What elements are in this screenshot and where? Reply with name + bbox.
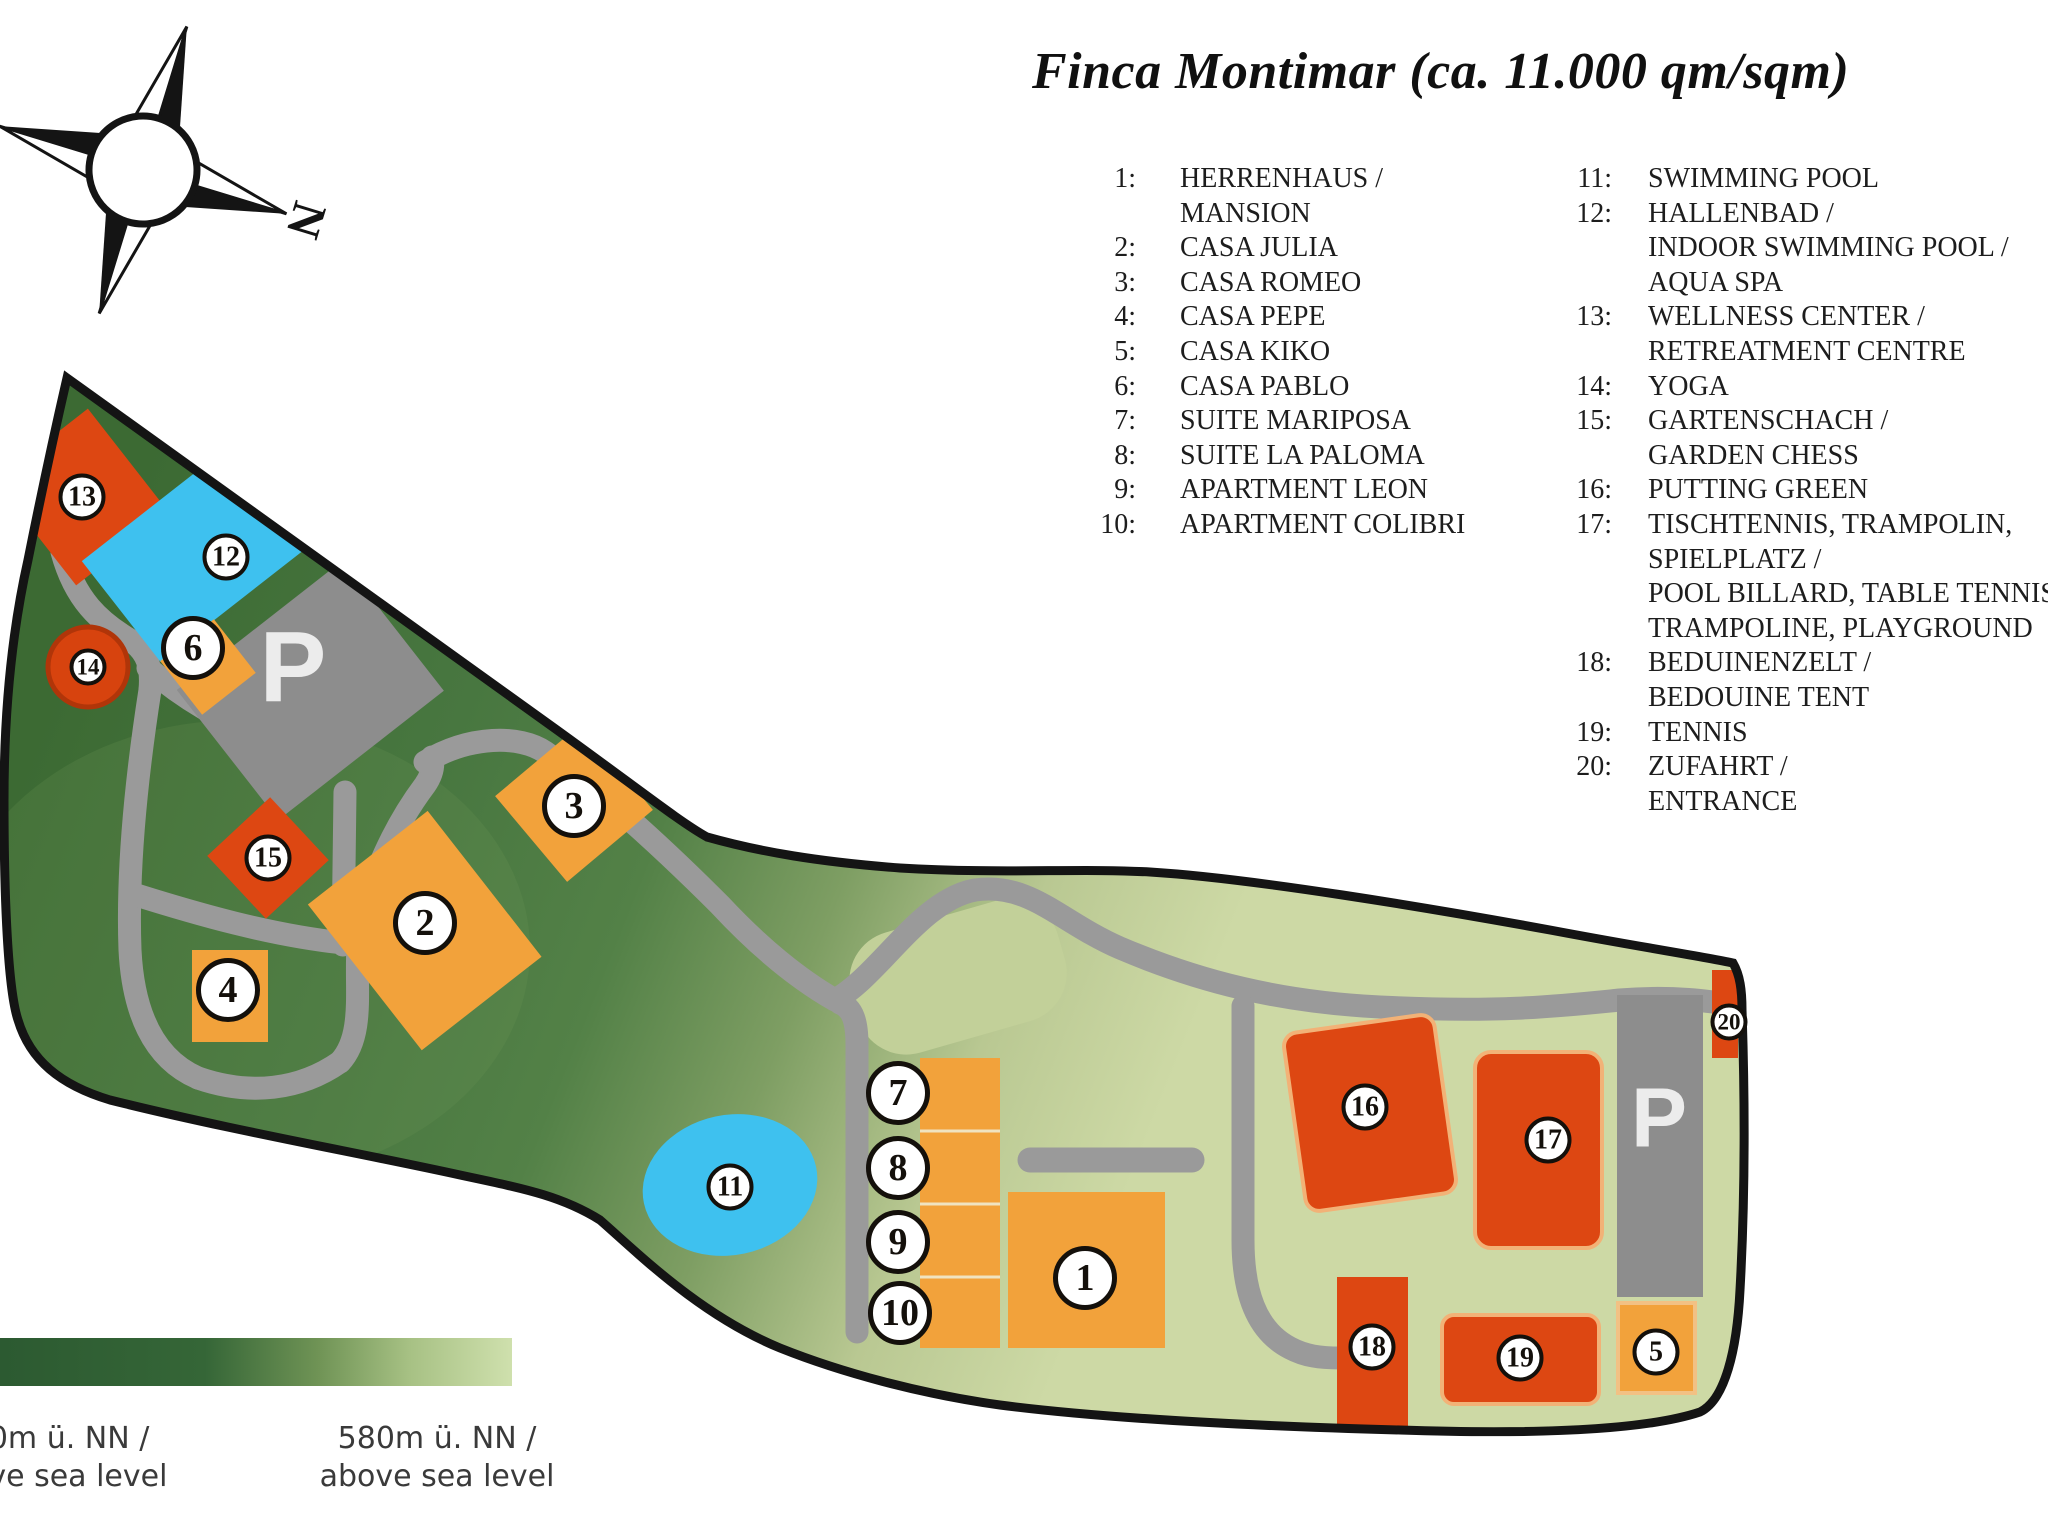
legend-item: MANSION	[1096, 197, 1465, 232]
map-marker-15: 15	[245, 835, 292, 882]
map-marker-13: 13	[59, 474, 106, 521]
legend-item: 19:TENNIS	[1540, 716, 2048, 751]
map-marker-12: 12	[203, 534, 250, 581]
map-marker-10: 10	[868, 1281, 932, 1345]
legend-item: 16:PUTTING GREEN	[1540, 473, 2048, 508]
legend-item: 3:CASA ROMEO	[1096, 266, 1465, 301]
legend-item: 18:BEDUINENZELT /	[1540, 646, 2048, 681]
building-block-7-10-suites	[920, 1058, 1000, 1348]
legend-column-1: 1:HERRENHAUS / MANSION 2:CASA JULIA 3:CA…	[1096, 162, 1465, 543]
legend-column-2: 11:SWIMMING POOL 12:HALLENBAD / INDOOR S…	[1540, 162, 2048, 819]
legend-item: 6:CASA PABLO	[1096, 370, 1465, 405]
legend-item: 12:HALLENBAD /	[1540, 197, 2048, 232]
page-title: Finca Montimar (ca. 11.000 qm/sqm)	[1032, 42, 1849, 101]
legend-item: GARDEN CHESS	[1540, 439, 2048, 474]
legend-item: 9:APARTMENT LEON	[1096, 473, 1465, 508]
legend-item: 5:CASA KIKO	[1096, 335, 1465, 370]
compass-rose-icon	[0, 0, 330, 357]
legend-item: 11:SWIMMING POOL	[1540, 162, 2048, 197]
map-marker-16: 16	[1342, 1084, 1389, 1131]
elevation-gradient-bar	[0, 1338, 512, 1386]
map-marker-14: 14	[70, 649, 107, 686]
legend-item: BEDOUINE TENT	[1540, 681, 2048, 716]
map-marker-2: 2	[393, 891, 457, 955]
legend-item: INDOOR SWIMMING POOL /	[1540, 231, 2048, 266]
legend-item: 4:CASA PEPE	[1096, 300, 1465, 335]
legend-item: 15:GARTENSCHACH /	[1540, 404, 2048, 439]
legend-item: AQUA SPA	[1540, 266, 2048, 301]
legend-item: 2:CASA JULIA	[1096, 231, 1465, 266]
map-marker-11: 11	[707, 1164, 754, 1211]
map-marker-5: 5	[1633, 1329, 1680, 1376]
elevation-label-low: 580m ü. NN / above sea level	[267, 1420, 607, 1496]
building-edge-sliver	[0, 1050, 34, 1088]
map-marker-19: 19	[1497, 1335, 1544, 1382]
legend-item: RETREATMENT CENTRE	[1540, 335, 2048, 370]
legend-item: 14:YOGA	[1540, 370, 2048, 405]
parking-p-label-east: P	[1631, 1070, 1687, 1167]
legend-item: TRAMPOLINE, PLAYGROUND	[1540, 612, 2048, 647]
legend-item: 7:SUITE MARIPOSA	[1096, 404, 1465, 439]
parking-p-label-west: P	[260, 611, 327, 726]
finca-montimar-site-plan: { "title": "Finca Montimar (ca. 11.000 q…	[0, 0, 2048, 1536]
map-marker-18: 18	[1349, 1324, 1396, 1371]
map-marker-7: 7	[866, 1061, 930, 1125]
legend-item: POOL BILLARD, TABLE TENNIS,	[1540, 577, 2048, 612]
map-marker-6: 6	[161, 616, 225, 680]
map-marker-9: 9	[866, 1210, 930, 1274]
map-marker-1: 1	[1053, 1246, 1117, 1310]
legend-item: 8:SUITE LA PALOMA	[1096, 439, 1465, 474]
map-marker-4: 4	[196, 958, 260, 1022]
legend-item: 20:ZUFAHRT /	[1540, 750, 2048, 785]
legend-item: ENTRANCE	[1540, 785, 2048, 820]
map-marker-17: 17	[1525, 1117, 1572, 1164]
legend-item: 1:HERRENHAUS /	[1096, 162, 1465, 197]
legend-item: SPIELPLATZ /	[1540, 543, 2048, 578]
map-marker-20: 20	[1711, 1004, 1748, 1041]
map-marker-3: 3	[542, 774, 606, 838]
legend-item: 13:WELLNESS CENTER /	[1540, 300, 2048, 335]
elevation-label-high: 650m ü. NN / above sea level	[0, 1420, 220, 1496]
legend-item: 10:APARTMENT COLIBRI	[1096, 508, 1465, 543]
map-marker-8: 8	[866, 1136, 930, 1200]
legend-item: 17:TISCHTENNIS, TRAMPOLIN,	[1540, 508, 2048, 543]
